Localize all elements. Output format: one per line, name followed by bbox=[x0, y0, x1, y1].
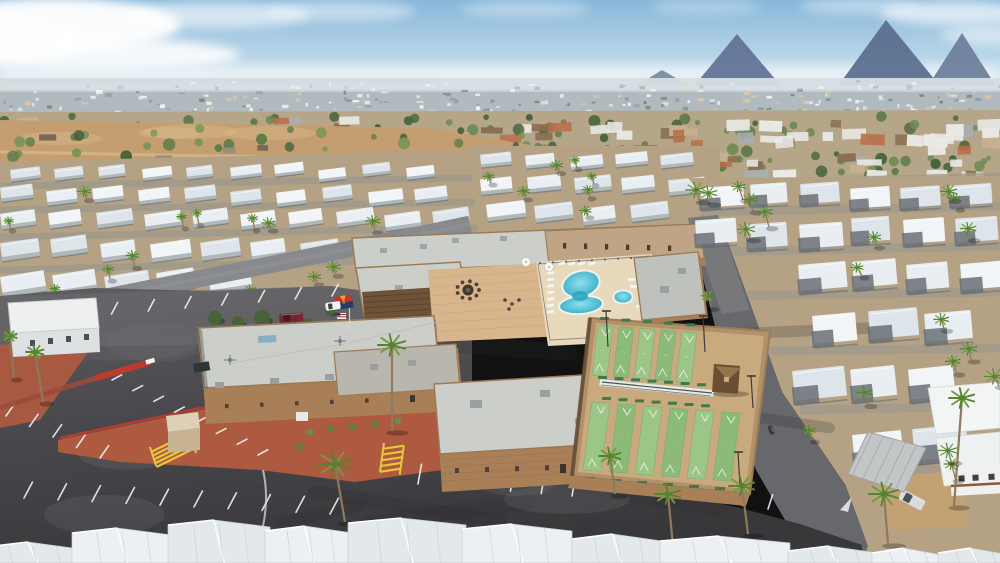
skylight bbox=[258, 335, 276, 343]
foreground-home-roof bbox=[462, 524, 572, 563]
pool-house-roof bbox=[634, 252, 706, 320]
spa bbox=[614, 291, 633, 304]
mobile-home bbox=[790, 366, 848, 407]
maroon-minivan bbox=[279, 312, 304, 323]
aerial-photo bbox=[0, 0, 1000, 563]
foreground-home-roof bbox=[168, 520, 270, 563]
foreground-home-roof bbox=[265, 526, 353, 563]
mobile-home bbox=[527, 174, 562, 194]
foreground-home-roof bbox=[348, 518, 466, 563]
shuffleboard-courts bbox=[572, 311, 770, 494]
mobile-home bbox=[525, 153, 555, 170]
foreground-home-roof bbox=[72, 528, 172, 563]
us-flag bbox=[337, 313, 346, 319]
mobile-home bbox=[621, 175, 655, 195]
parking-stall-line bbox=[768, 495, 773, 509]
mobile-home bbox=[796, 261, 848, 296]
